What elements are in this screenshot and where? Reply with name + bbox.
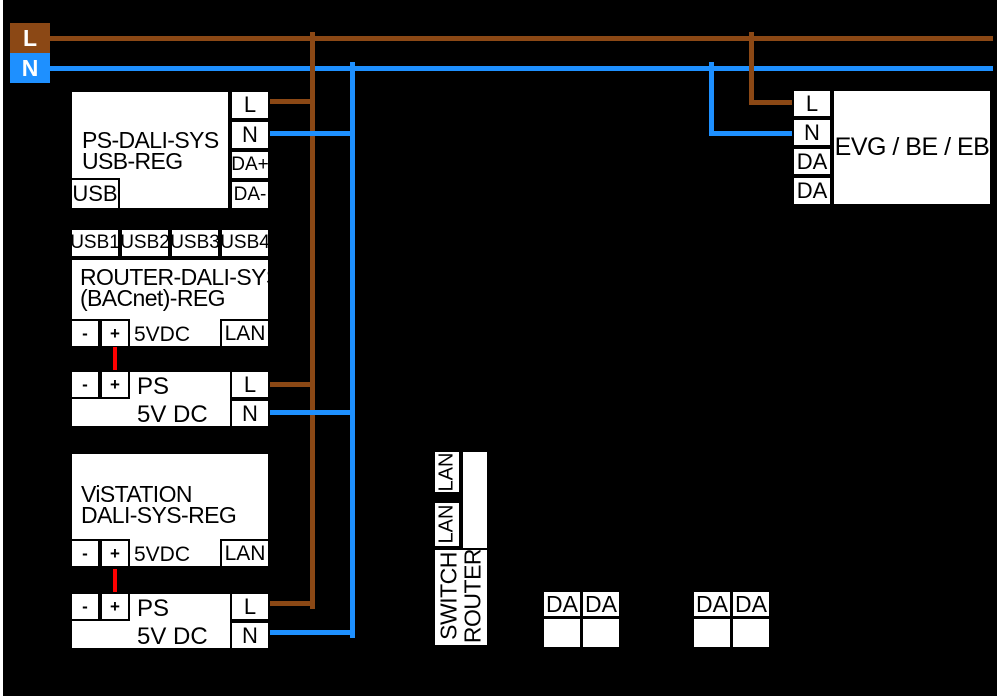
- usb1-port: USB1: [70, 228, 120, 258]
- wire-n-stub-ps-dali-sys: [270, 131, 355, 136]
- dc-plus-terminal: +: [100, 592, 130, 621]
- usb4-port: USB4: [220, 228, 270, 258]
- wire-n-drop-evg: [709, 62, 714, 136]
- wire-5vdc-jumper-bottom: [113, 569, 117, 592]
- n-bus-badge: N: [10, 53, 50, 83]
- dc-plus-terminal: +: [100, 370, 130, 399]
- dali-device-cell: [542, 617, 582, 649]
- wire-n-stub-ps-bottom: [270, 630, 355, 635]
- lan-port: LAN: [220, 319, 270, 348]
- title-line2: USB-REG: [82, 151, 219, 172]
- da-terminal: DA: [692, 590, 732, 618]
- router-dali-sys-title: ROUTER-DALI-SYS (BACnet)-REG: [80, 267, 281, 309]
- terminal-n: N: [230, 399, 270, 428]
- dali-device-cell: [581, 617, 621, 649]
- wiring-diagram: PS-DALI-SYS USB-REG L N DA+ DA- USB USB1…: [0, 0, 1000, 699]
- ps-voltage-label: 5V DC: [137, 401, 208, 429]
- ps-dali-sys-usb-reg-title: PS-DALI-SYS USB-REG: [82, 130, 219, 172]
- dc-minus-terminal: -: [70, 592, 100, 621]
- wire-l-drop-left: [310, 32, 315, 609]
- dc-minus-terminal: -: [70, 319, 100, 348]
- terminal-da: DA: [792, 176, 832, 206]
- terminal-n: N: [230, 120, 270, 150]
- ps-label: PS: [137, 373, 169, 401]
- dc-voltage-label: 5VDC: [134, 323, 190, 347]
- dali-device-cell: [731, 617, 771, 649]
- dc-voltage-label: 5VDC: [134, 543, 190, 567]
- title-line2: (BACnet)-REG: [80, 288, 281, 309]
- usb3-port: USB3: [170, 228, 220, 258]
- terminal-l: L: [230, 90, 270, 120]
- wire-l-bus: [50, 36, 993, 41]
- terminal-da-minus: DA-: [230, 180, 270, 210]
- terminal-da-plus: DA+: [230, 150, 270, 180]
- terminal-l: L: [792, 89, 832, 118]
- terminal-da: DA: [792, 147, 832, 176]
- lan-port-2-label: LAN: [436, 505, 459, 544]
- dc-plus-terminal: +: [100, 319, 130, 348]
- wire-l-stub-evg: [749, 100, 792, 105]
- wire-n-stub-ps-top: [270, 410, 355, 415]
- lan-port: LAN: [220, 539, 270, 568]
- l-bus-badge: L: [10, 23, 50, 53]
- terminal-n: N: [792, 118, 832, 147]
- terminal-n: N: [230, 621, 270, 650]
- evg-be-eb-box: EVG / BE / EB: [832, 89, 992, 206]
- wire-l-stub-ps-top: [270, 382, 315, 387]
- dc-plus-terminal: +: [100, 539, 130, 568]
- da-terminal: DA: [542, 590, 582, 618]
- wire-n-bus: [50, 66, 993, 71]
- title-line2: DALI-SYS-REG: [81, 505, 236, 526]
- wire-l-stub-ps-dali-sys: [270, 99, 315, 104]
- dc-minus-terminal: -: [70, 370, 100, 399]
- router-label: ROUTER: [460, 549, 487, 643]
- terminal-l: L: [230, 370, 270, 399]
- switch-label: SWITCH: [436, 552, 463, 640]
- lan-port-1-label: LAN: [436, 453, 459, 492]
- vistation-title: ViSTATION DALI-SYS-REG: [81, 484, 236, 526]
- dali-device-cell: [692, 617, 732, 649]
- terminal-l: L: [230, 592, 270, 621]
- wire-n-drop-left: [350, 62, 355, 638]
- usb2-port: USB2: [120, 228, 170, 258]
- wire-l-stub-ps-bottom: [270, 601, 315, 606]
- dc-minus-terminal: -: [70, 539, 100, 568]
- wire-n-stub-evg: [709, 131, 792, 136]
- wire-l-drop-evg: [749, 32, 754, 105]
- wire-5vdc-jumper-top: [113, 347, 117, 370]
- ps-voltage-label: 5V DC: [137, 623, 208, 651]
- da-terminal: DA: [731, 590, 771, 618]
- da-terminal: DA: [581, 590, 621, 618]
- usb-port: USB: [70, 178, 120, 210]
- ps-label: PS: [137, 595, 169, 623]
